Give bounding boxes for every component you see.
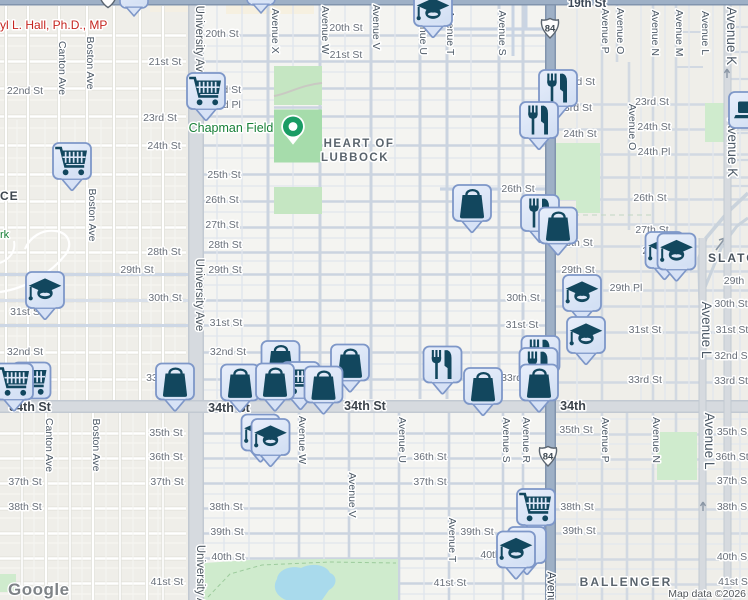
svg-text:38th St: 38th St	[8, 501, 41, 513]
svg-text:29th St: 29th St	[120, 264, 153, 276]
svg-text:37th St: 37th St	[150, 476, 183, 488]
svg-text:33rd St: 33rd St	[628, 374, 662, 386]
svg-text:Boston Ave: Boston Ave	[84, 37, 96, 90]
svg-text:Avenue L: Avenue L	[699, 302, 714, 359]
svg-text:37th S: 37th S	[717, 475, 747, 487]
svg-text:24th Pl: 24th Pl	[638, 146, 671, 158]
svg-text:28th St: 28th St	[147, 246, 180, 258]
svg-text:31st St: 31st St	[506, 319, 539, 331]
svg-text:28th St: 28th St	[208, 239, 241, 251]
svg-text:35th S: 35th S	[717, 426, 747, 438]
svg-text:University Av: University Av	[194, 545, 206, 600]
svg-text:30th St: 30th St	[506, 292, 539, 304]
svg-text:Chapman Field: Chapman Field	[189, 121, 274, 135]
svg-text:26th St: 26th St	[205, 194, 238, 206]
svg-text:21st St: 21st St	[149, 56, 182, 68]
svg-text:BALLENGER: BALLENGER	[580, 575, 673, 589]
svg-text:31st St: 31st St	[629, 324, 662, 336]
svg-text:Avenue X: Avenue X	[269, 8, 281, 53]
svg-text:Avenue N: Avenue N	[649, 10, 661, 56]
svg-text:84: 84	[543, 451, 554, 462]
svg-text:34th: 34th	[560, 399, 586, 413]
svg-text:29th Pl: 29th Pl	[610, 282, 643, 294]
svg-text:Avenue N: Avenue N	[650, 417, 662, 463]
svg-text:26th St: 26th St	[501, 183, 534, 195]
svg-text:Avenue K: Avenue K	[724, 7, 739, 65]
svg-text:25th St: 25th St	[207, 169, 240, 181]
svg-text:36th St: 36th St	[413, 451, 446, 463]
svg-text:Avenue W: Avenue W	[319, 6, 331, 54]
svg-text:38th St: 38th St	[560, 501, 593, 513]
svg-text:Avenue O: Avenue O	[626, 104, 638, 151]
svg-text:20th St: 20th St	[205, 28, 238, 40]
svg-text:Boston Ave: Boston Ave	[86, 189, 98, 242]
svg-text:39th St: 39th St	[210, 526, 243, 538]
svg-text:Avenue P: Avenue P	[599, 417, 611, 462]
svg-text:24th St: 24th St	[637, 121, 670, 133]
svg-text:24th St: 24th St	[147, 140, 180, 152]
svg-text:27th St: 27th St	[205, 219, 238, 231]
svg-text:22nd St: 22nd St	[7, 85, 43, 97]
svg-text:41st S: 41st S	[718, 576, 748, 588]
svg-text:Avenue L: Avenue L	[699, 11, 711, 55]
svg-text:38th S: 38th S	[717, 501, 747, 513]
svg-text:Google: Google	[8, 580, 70, 599]
svg-text:LUBBOCK: LUBBOCK	[321, 152, 389, 164]
svg-text:Map data ©2026: Map data ©2026	[668, 588, 746, 600]
svg-text:41st St: 41st St	[434, 577, 467, 589]
svg-text:Canton Ave: Canton Ave	[56, 41, 68, 95]
svg-text:37th St: 37th St	[413, 476, 446, 488]
svg-text:30th St: 30th St	[148, 292, 181, 304]
svg-text:23rd St: 23rd St	[143, 112, 177, 124]
svg-text:Avenue T: Avenue T	[446, 518, 458, 563]
svg-text:39th St: 39th St	[460, 526, 493, 538]
svg-text:33rd St: 33rd St	[714, 375, 748, 387]
svg-text:35th St: 35th St	[559, 424, 592, 436]
svg-text:Avenue O: Avenue O	[614, 8, 626, 55]
svg-text:20th St: 20th St	[329, 22, 362, 34]
svg-text:Canton Ave: Canton Ave	[43, 418, 55, 472]
svg-text:HEART OF: HEART OF	[324, 138, 395, 150]
svg-text:Avenue M: Avenue M	[673, 9, 685, 56]
svg-text:Avenue W: Avenue W	[296, 416, 308, 464]
svg-text:36th St: 36th St	[149, 451, 182, 463]
svg-text:31st St: 31st St	[210, 317, 243, 329]
svg-text:40th St: 40th St	[211, 551, 244, 563]
svg-text:rk: rk	[0, 229, 10, 241]
svg-text:SLATON: SLATON	[708, 251, 748, 265]
svg-text:36th St: 36th St	[715, 451, 748, 463]
svg-text:Avenue: Avenue	[545, 572, 557, 600]
svg-text:University Ave: University Ave	[193, 6, 205, 79]
svg-text:26th St: 26th St	[633, 192, 666, 204]
svg-text:Boston Ave: Boston Ave	[90, 419, 102, 472]
svg-text:Avenue S: Avenue S	[500, 417, 512, 462]
svg-text:Avenue P: Avenue P	[599, 8, 611, 53]
svg-text:29th St: 29th St	[208, 264, 241, 276]
svg-text:Avenue V: Avenue V	[346, 472, 358, 517]
svg-text:Avenue U: Avenue U	[396, 417, 408, 463]
svg-text:31st St: 31st St	[716, 324, 748, 336]
svg-text:32nd S: 32nd S	[714, 350, 747, 362]
svg-text:35th St: 35th St	[149, 427, 182, 439]
svg-text:yl L. Hall, Ph.D., MP: yl L. Hall, Ph.D., MP	[0, 18, 107, 32]
svg-text:39th St: 39th St	[562, 525, 595, 537]
svg-text:University Ave: University Ave	[193, 259, 205, 332]
svg-text:37th St: 37th St	[8, 476, 41, 488]
svg-text:34th St: 34th St	[344, 399, 387, 413]
svg-text:30th St: 30th St	[714, 298, 747, 310]
svg-text:Avenue R: Avenue R	[520, 417, 532, 463]
svg-text:40th S: 40th S	[717, 551, 747, 563]
svg-text:Avenue L: Avenue L	[702, 413, 717, 470]
svg-text:24th St: 24th St	[563, 128, 596, 140]
svg-text:Avenue S: Avenue S	[496, 10, 508, 55]
svg-text:41st St: 41st St	[151, 576, 184, 588]
svg-text:23rd St: 23rd St	[635, 96, 669, 108]
svg-text:38th St: 38th St	[209, 501, 242, 513]
svg-text:29th: 29th	[724, 275, 745, 287]
svg-text:32nd St: 32nd St	[7, 346, 43, 358]
svg-text:CE: CE	[0, 189, 19, 203]
svg-text:Avenue V: Avenue V	[370, 4, 382, 49]
svg-text:84: 84	[545, 23, 556, 34]
svg-text:21st St: 21st St	[330, 49, 363, 61]
svg-text:32nd St: 32nd St	[210, 346, 246, 358]
